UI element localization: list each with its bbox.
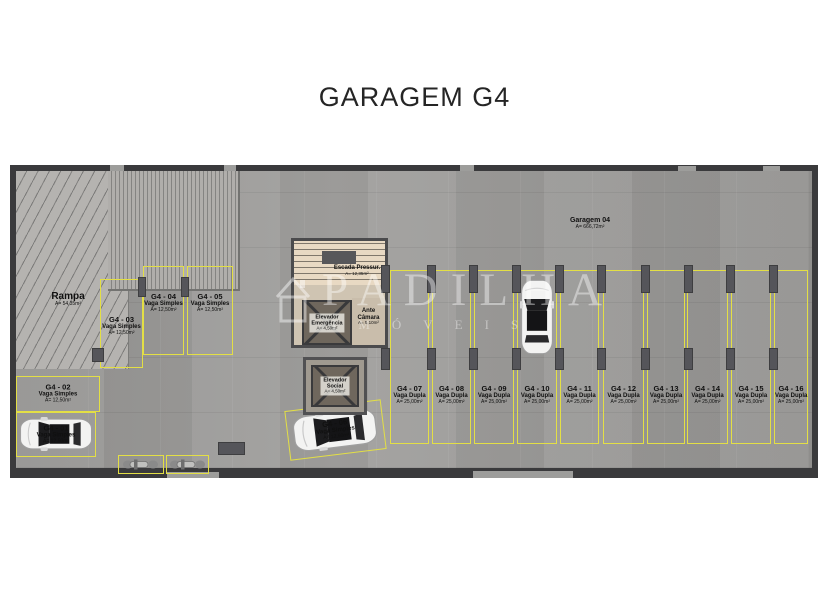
wall-opening (763, 166, 780, 171)
parking-spot-g4-07: G4 - 07Vaga DuplaA= 25,00m² (390, 270, 429, 444)
column (427, 348, 436, 370)
parking-spot-label: G4 - 07Vaga DuplaA= 25,00m² (391, 385, 428, 406)
parking-spot-g4-13: G4 - 13Vaga DuplaA= 25,00m² (647, 270, 685, 444)
column (469, 265, 478, 293)
column (641, 265, 650, 293)
parking-spot-label: G4 - 01Vaga SimplesA= 12,50m² (17, 424, 95, 445)
wall-opening (473, 471, 573, 478)
column (726, 348, 735, 370)
moto-spot (166, 455, 209, 474)
ramp-label: Rampa A= 54,35m² (28, 291, 108, 308)
parking-spot-g4-09: G4 - 09Vaga DuplaA= 25,00m² (474, 270, 514, 444)
parking-spot-label: G4 - 15Vaga DuplaA= 25,00m² (732, 385, 770, 406)
column (597, 348, 606, 370)
wall-opening (110, 165, 124, 171)
parking-spot-g4-11: G4 - 11Vaga DuplaA= 25,00m² (560, 270, 599, 444)
motorcycle-icon (121, 458, 161, 471)
emergency-elevator-label: Elevador Emergência A= 4,50m² (309, 313, 344, 332)
ante-chamber: Ante Câmara A= 5,10m² (352, 298, 385, 345)
parking-spot-label: G4 - 13Vaga DuplaA= 25,00m² (648, 385, 684, 406)
car-icon (520, 272, 554, 362)
parking-spot-label: G4 - 08Vaga DuplaA= 25,00m² (433, 385, 470, 406)
column (726, 265, 735, 293)
parking-spot-label: G4 - 05Vaga SimplesA= 12,50m² (188, 293, 232, 314)
column (769, 265, 778, 293)
wall-opening (224, 165, 236, 171)
column (597, 265, 606, 293)
column (641, 348, 650, 370)
parking-spot-label: G4 - 16Vaga DuplaA= 25,00m² (775, 385, 807, 406)
emergency-elevator-shaft: Elevador Emergência A= 4,50m² (302, 300, 352, 345)
garage-plan: Rampa A= 54,35m² Garagem 04 A= 666,72m² … (10, 165, 818, 478)
parking-spot-label: G4 - 12Vaga DuplaA= 25,00m² (604, 385, 643, 406)
social-elevator-label: Elevador Social A= 4,50m² (321, 376, 350, 395)
parking-spot-g4-14: G4 - 14Vaga DuplaA= 25,00m² (687, 270, 728, 444)
parking-spot-g4-08: G4 - 08Vaga DuplaA= 25,00m² (432, 270, 471, 444)
stair-elevator-core: Escada Pressur. A= 12,35m² Elevador Emer… (291, 238, 388, 348)
column (555, 348, 564, 370)
ante-chamber-label: Ante Câmara A= 5,10m² (352, 308, 385, 326)
parking-spot-g4-04: G4 - 04Vaga SimplesA= 12,50m² (143, 266, 184, 355)
parking-spot-label: G4 - 02Vaga SimplesA= 12,50m² (17, 384, 99, 405)
parking-spot-label: G4 - 09Vaga DuplaA= 25,00m² (475, 385, 513, 406)
column (769, 348, 778, 370)
parking-spot-g4-05: G4 - 05Vaga SimplesA= 12,50m² (187, 266, 233, 355)
page-title: GARAGEM G4 (0, 82, 829, 113)
column (469, 348, 478, 370)
social-elevator: Elevador Social A= 4,50m² (303, 357, 367, 415)
column (684, 265, 693, 293)
parking-spot-label: G4 - 11Vaga DuplaA= 25,00m² (561, 385, 598, 406)
parking-spot-label: G4 - 14Vaga DuplaA= 25,00m² (688, 385, 727, 406)
column (381, 265, 390, 293)
parking-spot-g4-12: G4 - 12Vaga DuplaA= 25,00m² (603, 270, 644, 444)
column (181, 277, 189, 297)
moto-spot (118, 455, 164, 474)
column (381, 348, 390, 370)
column (684, 348, 693, 370)
parking-spot-g4-15: G4 - 15Vaga DuplaA= 25,00m² (731, 270, 771, 444)
column (138, 277, 146, 297)
column (427, 265, 436, 293)
stair-landing (322, 251, 356, 264)
column (92, 348, 104, 362)
garage-area-label: Garagem 04 A= 666,72m² (530, 217, 650, 230)
parking-spot-label: G4 - 03Vaga SimplesA= 12,50m² (101, 316, 142, 337)
parking-spot-g4-10: G4 - 10Vaga DuplaA= 25,00m² (517, 270, 557, 444)
floor-plan-page: GARAGEM G4 Rampa A= 54,35m² Garagem 04 A… (0, 0, 829, 600)
wall-opening (678, 166, 696, 171)
parking-spot-g4-01: G4 - 01Vaga SimplesA= 12,50m² (16, 412, 96, 457)
motorcycle-icon (168, 458, 208, 471)
column (555, 265, 564, 293)
parking-spot-g4-02: G4 - 02Vaga SimplesA= 12,50m² (16, 376, 100, 412)
column (512, 348, 521, 370)
parking-spot-label: G4 - 04Vaga SimplesA= 12,50m² (144, 293, 183, 314)
parking-spot-g4-16: G4 - 16Vaga DuplaA= 25,00m² (774, 270, 808, 444)
stairs-label: Escada Pressur. A= 12,35m² (328, 265, 386, 277)
column (512, 265, 521, 293)
parking-spot-label: G4 - 10Vaga DuplaA= 25,00m² (518, 385, 556, 406)
column (218, 442, 245, 455)
wall-opening (460, 165, 474, 171)
